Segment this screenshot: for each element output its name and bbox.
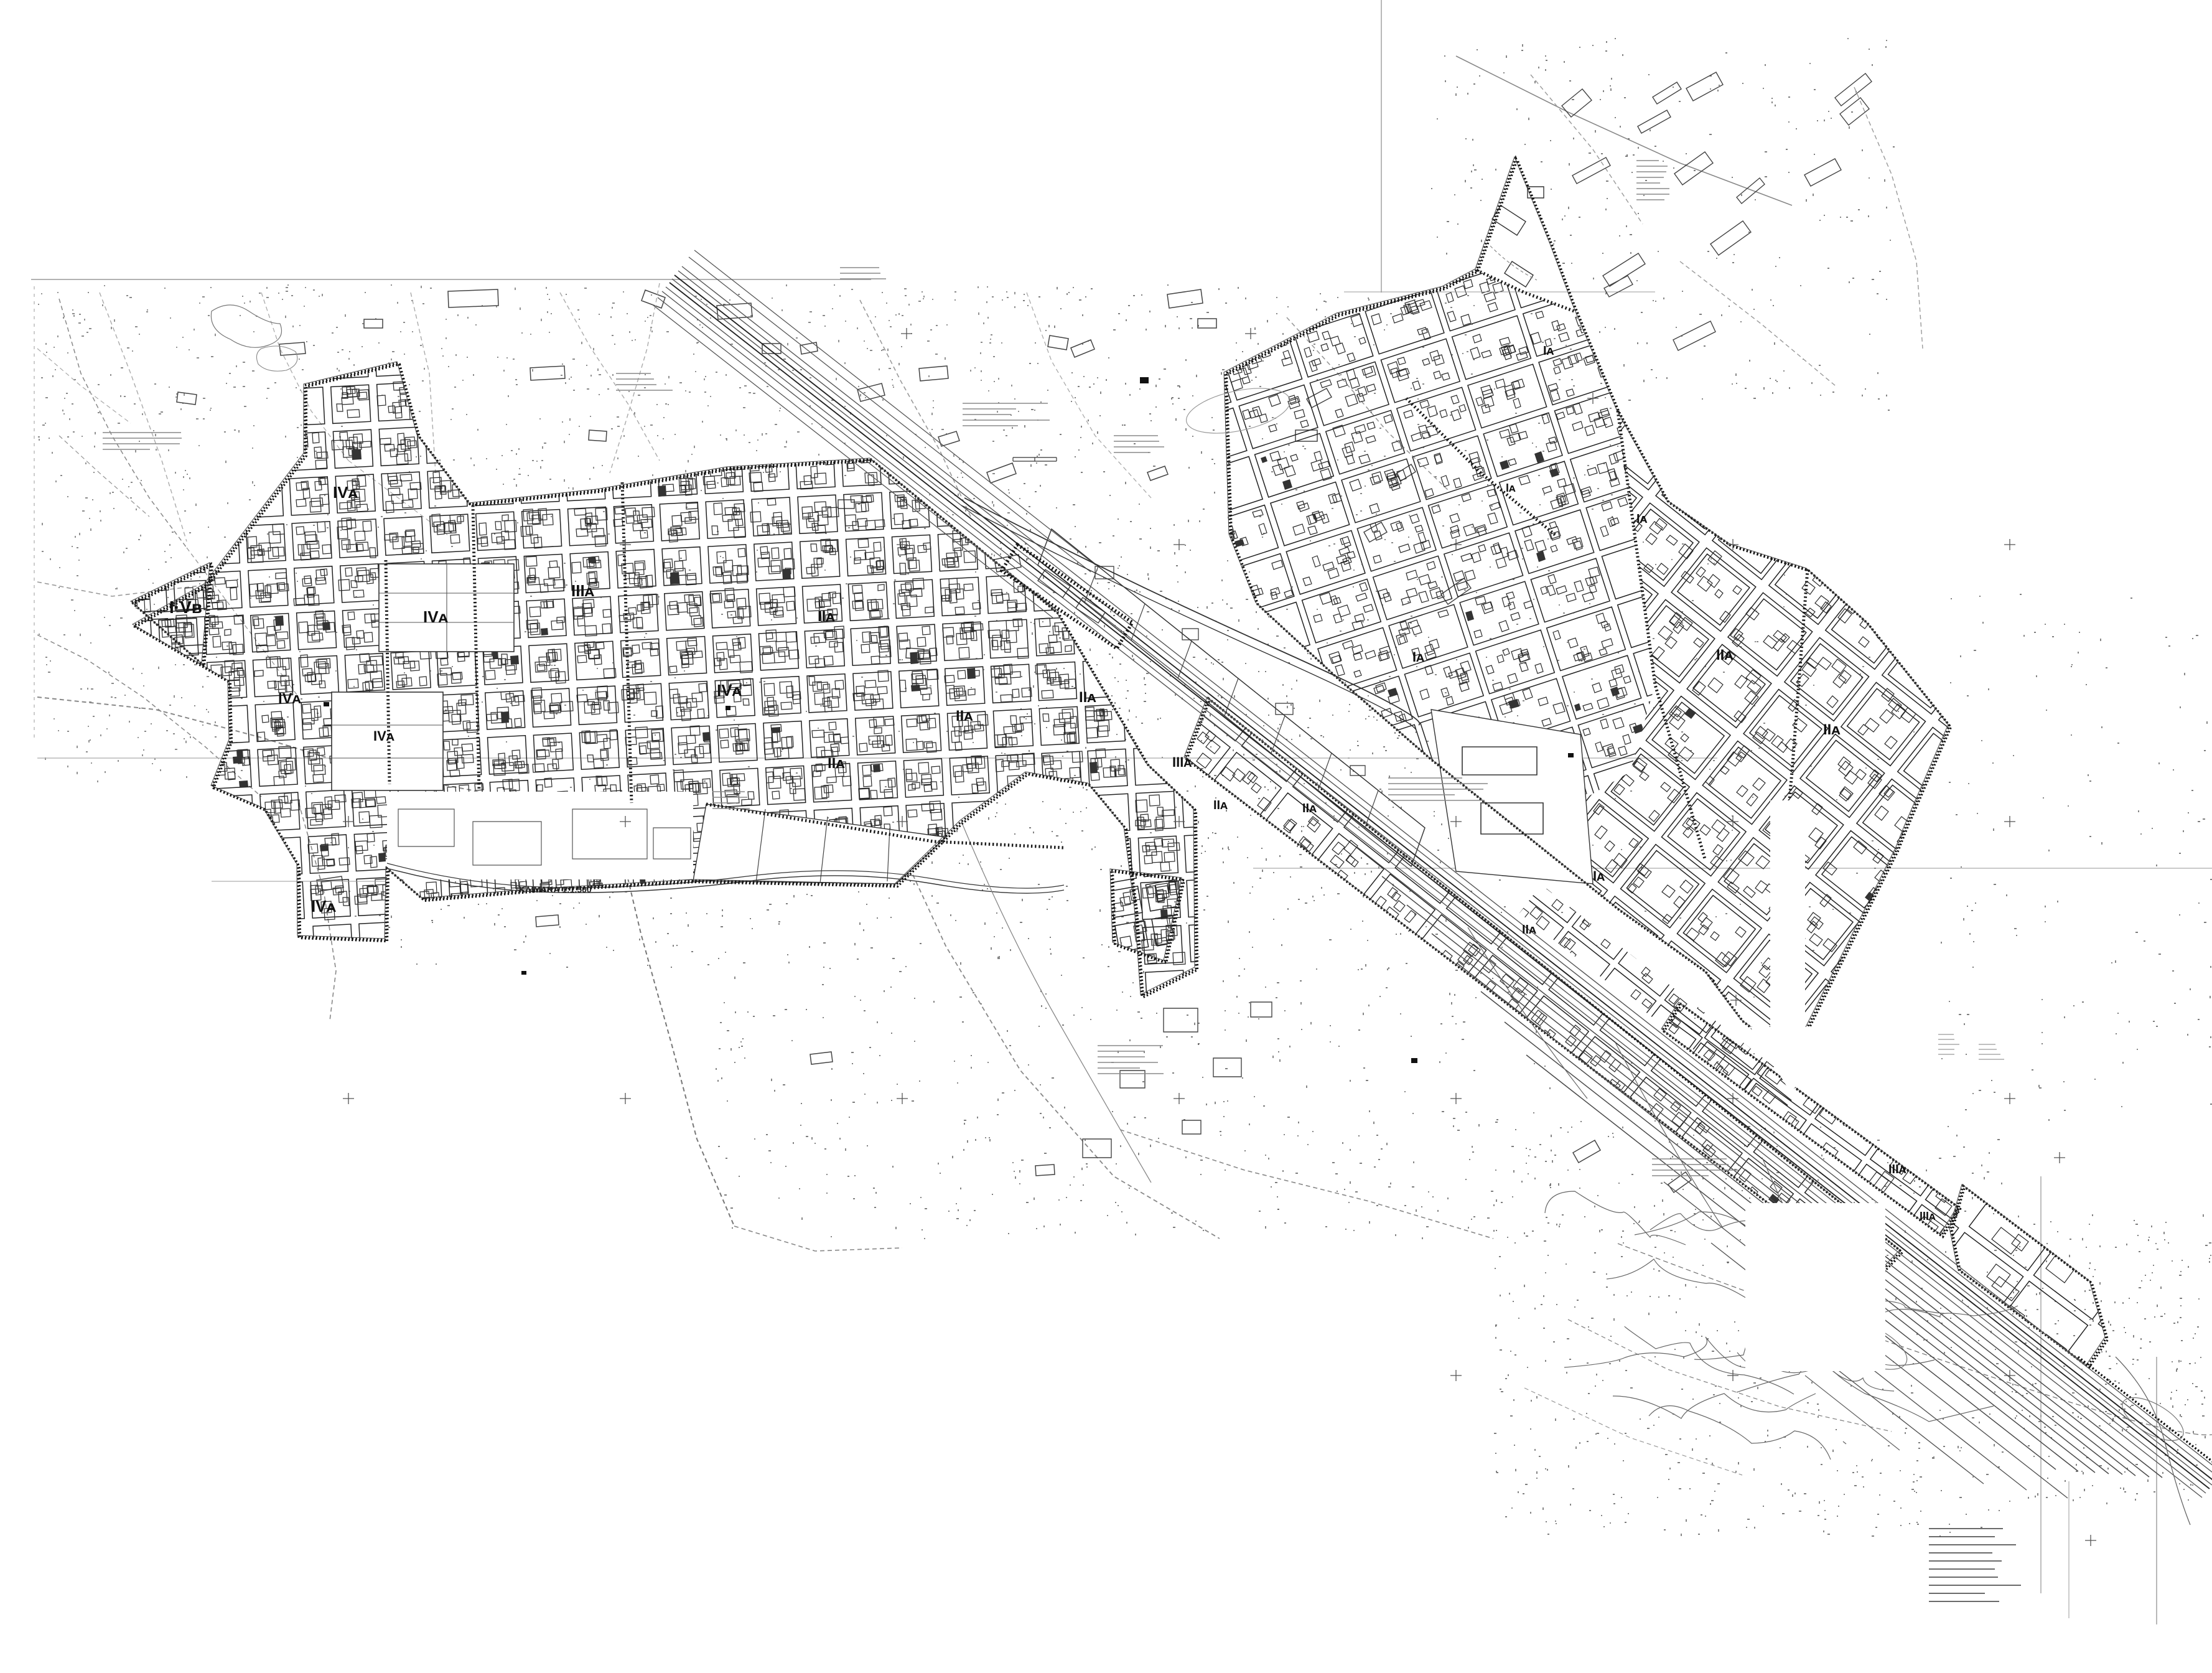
svg-text:IVᴀ: IVᴀ [333, 483, 358, 502]
svg-text:ΚΛΙΜΑΚΑ 1:1.500: ΚΛΙΜΑΚΑ 1:1.500 [519, 884, 592, 894]
svg-text:IIᴀ: IIᴀ [1823, 721, 1841, 738]
svg-text:Iᴀ: Iᴀ [1593, 868, 1605, 884]
svg-text:IVᴀ: IVᴀ [423, 607, 449, 626]
svg-text:I·Vʙ: I·Vʙ [169, 597, 202, 617]
svg-text:IIIᴀ: IIIᴀ [1172, 754, 1192, 770]
svg-text:IIIᴀ: IIIᴀ [1920, 1210, 1936, 1222]
svg-text:Iᴀ: Iᴀ [1543, 344, 1554, 358]
svg-text:IIᴀ: IIᴀ [1522, 923, 1536, 937]
svg-text:Iᴀ: Iᴀ [1506, 482, 1516, 494]
svg-text:Iᴀ: Iᴀ [1636, 512, 1648, 526]
svg-text:IIᴀ: IIᴀ [1302, 802, 1317, 815]
svg-text:IIᴀ: IIᴀ [1213, 799, 1228, 812]
svg-text:IIᴀ: IIᴀ [828, 755, 845, 772]
svg-text:IIᴀ: IIᴀ [1079, 689, 1096, 706]
svg-text:IVᴀ: IVᴀ [311, 897, 337, 916]
svg-text:IIIᴀ: IIIᴀ [571, 581, 595, 600]
svg-text:IIᴀ: IIᴀ [956, 708, 973, 724]
svg-text:IVᴀ: IVᴀ [717, 681, 742, 700]
svg-text:IIIᴀ: IIIᴀ [1888, 1163, 1906, 1176]
svg-text:IIᴀ: IIᴀ [818, 608, 835, 625]
svg-text:IVᴀ: IVᴀ [278, 690, 302, 707]
svg-text:Iᴀ: Iᴀ [1412, 649, 1424, 665]
svg-text:IVᴀ: IVᴀ [373, 728, 394, 744]
svg-text:IIᴀ: IIᴀ [1716, 647, 1734, 663]
